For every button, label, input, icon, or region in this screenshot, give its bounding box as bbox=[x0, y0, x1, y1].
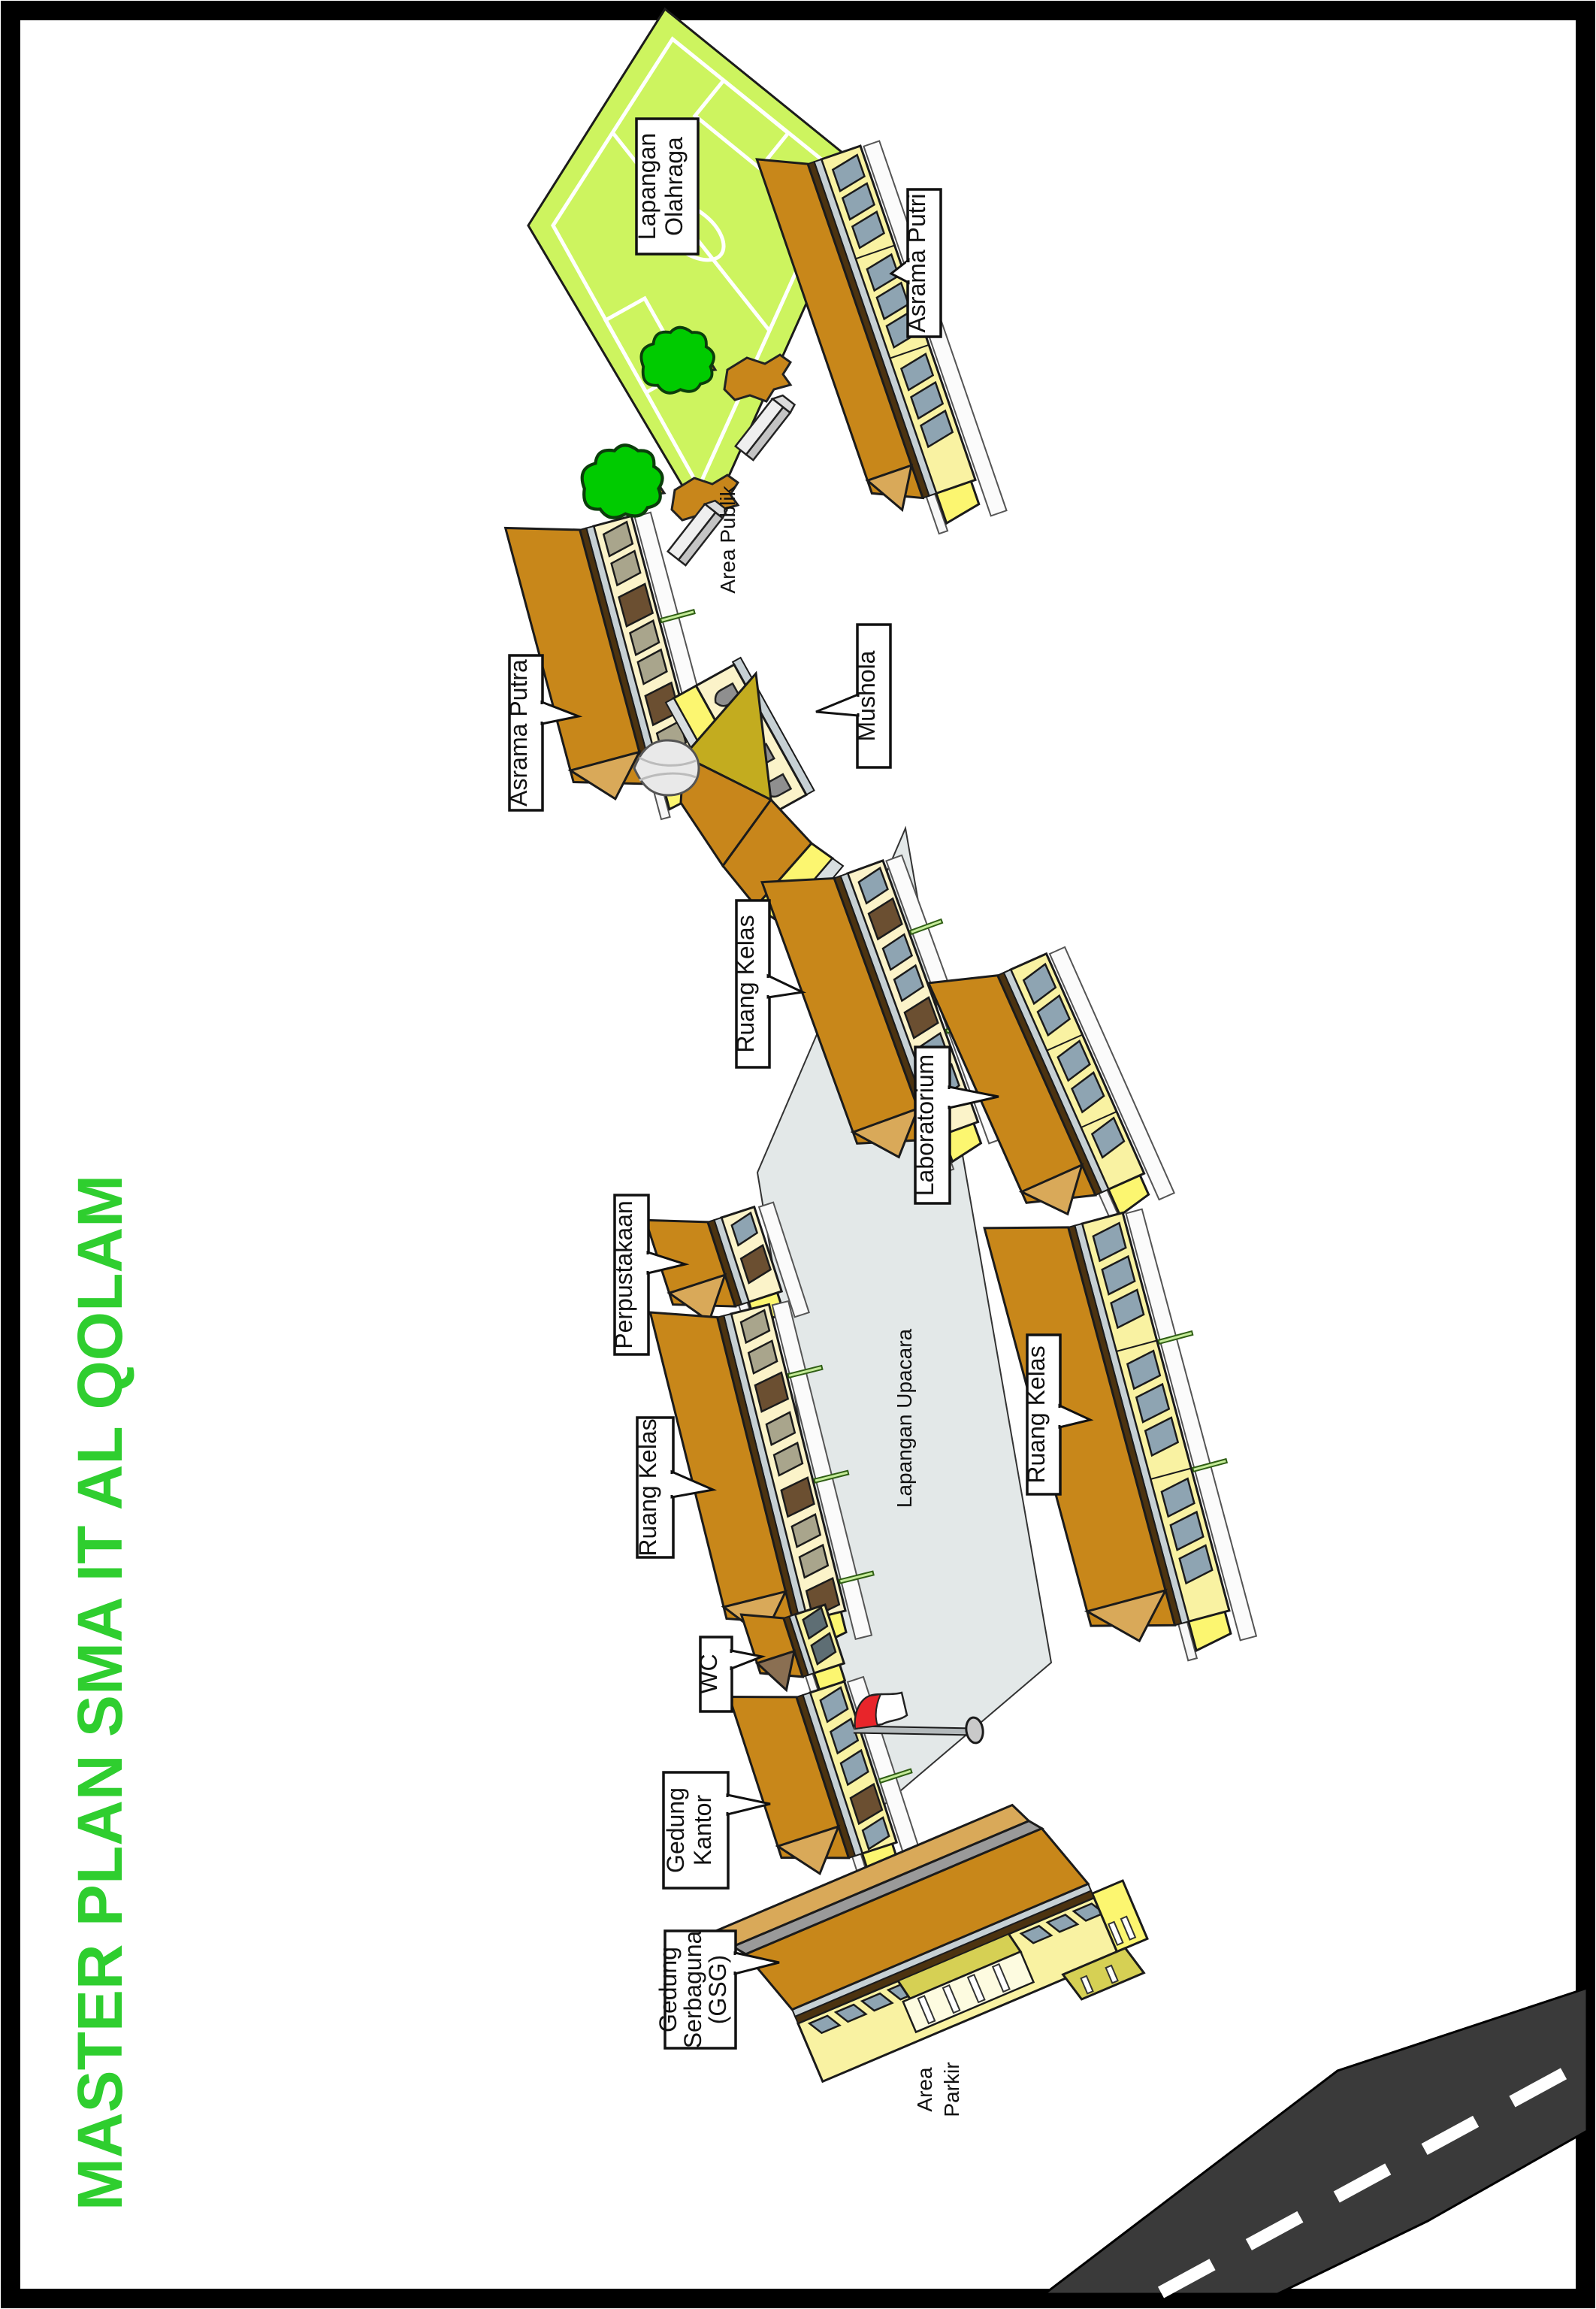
svg-text:Mushola: Mushola bbox=[853, 650, 880, 741]
building-asrama-putri bbox=[757, 120, 1006, 550]
svg-text:Serbaguna: Serbaguna bbox=[679, 1931, 706, 2049]
svg-text:Asrama Putri: Asrama Putri bbox=[903, 194, 930, 333]
svg-text:Ruang Kelas: Ruang Kelas bbox=[634, 1418, 661, 1556]
site-plan-canvas: MASTER PLAN SMA IT AL QOLAM bbox=[0, 0, 1596, 2309]
svg-text:Olahraga: Olahraga bbox=[660, 137, 688, 236]
svg-text:Area: Area bbox=[913, 2067, 936, 2112]
label-area-parkir: Area Parkir bbox=[913, 2062, 963, 2117]
label-lapangan-upacara: Lapangan Upacara bbox=[893, 1328, 916, 1508]
label-area-publik: Area Publik bbox=[716, 485, 739, 593]
svg-text:(GSG): (GSG) bbox=[704, 1955, 731, 2024]
svg-text:Ruang Kelas: Ruang Kelas bbox=[732, 915, 759, 1052]
svg-text:Asrama Putra: Asrama Putra bbox=[505, 659, 532, 806]
svg-text:Perpustakaan: Perpustakaan bbox=[610, 1200, 637, 1348]
svg-text:Laboratorium: Laboratorium bbox=[911, 1055, 939, 1197]
road bbox=[1044, 1988, 1587, 2294]
svg-text:Gedung: Gedung bbox=[654, 1947, 682, 2032]
label-lapangan-olahraga: Lapangan Olahraga bbox=[633, 119, 698, 254]
svg-text:Lapangan: Lapangan bbox=[633, 133, 660, 240]
label-mushola: Mushola bbox=[816, 625, 890, 767]
svg-text:Gedung: Gedung bbox=[662, 1787, 689, 1873]
label-gedung-kantor: Gedung Kantor bbox=[662, 1772, 770, 1888]
svg-text:WC: WC bbox=[695, 1654, 722, 1693]
page-title: MASTER PLAN SMA IT AL QOLAM bbox=[65, 1175, 135, 2211]
master-plan-page: MASTER PLAN SMA IT AL QOLAM bbox=[0, 0, 1596, 2309]
svg-text:Ruang Kelas: Ruang Kelas bbox=[1023, 1345, 1050, 1483]
svg-text:Kantor: Kantor bbox=[689, 1795, 716, 1866]
svg-text:Parkir: Parkir bbox=[940, 2062, 963, 2117]
